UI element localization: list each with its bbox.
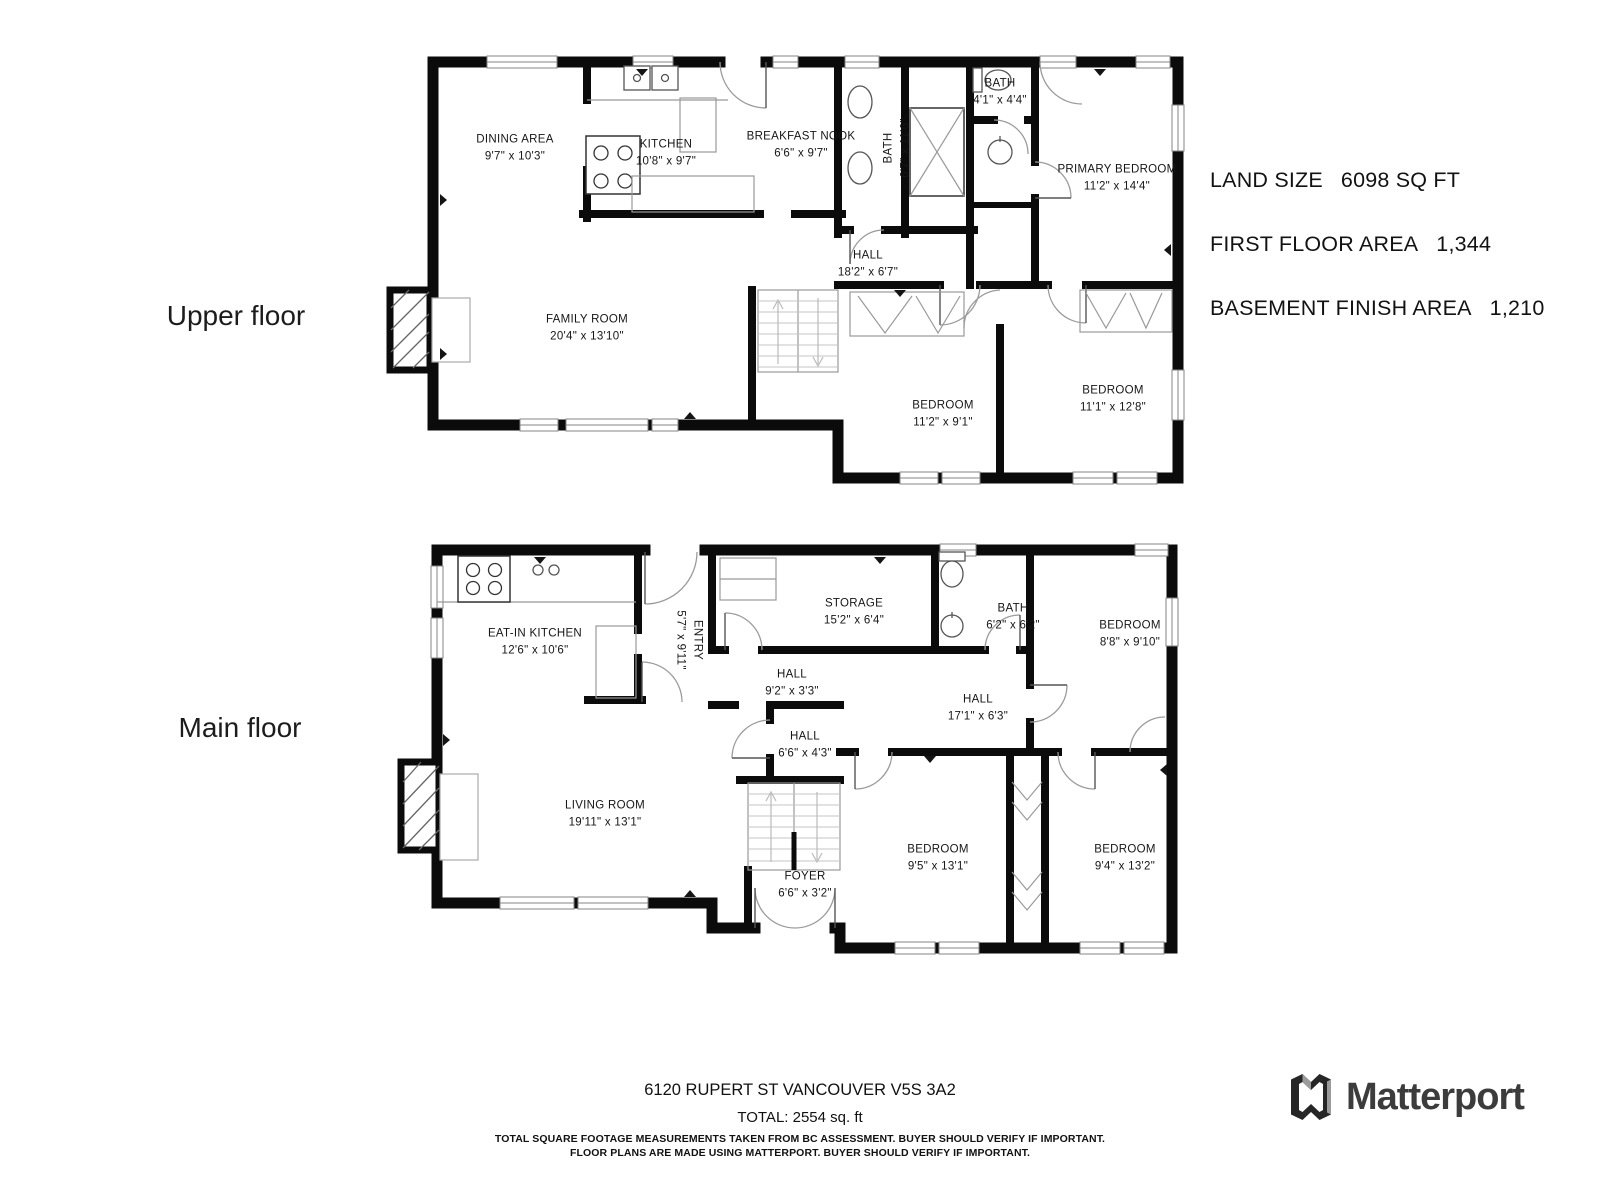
room-name: EAT-IN KITCHEN: [488, 625, 582, 642]
stat-label: BASEMENT FINISH AREA: [1210, 296, 1472, 321]
room-dims: 9'2" x 3'3": [765, 683, 819, 700]
room-dims: 6'6" x 3'2": [778, 885, 832, 902]
room-name: FOYER: [778, 868, 832, 885]
room-label-main-entry: ENTRY5'7" x 9'11": [672, 610, 705, 669]
room-dims: 4'1" x 4'4": [973, 92, 1027, 109]
stat-basement-finish-area: BASEMENT FINISH AREA 1,210: [1210, 296, 1544, 321]
door-icon: [642, 552, 1165, 928]
room-label-upper-nook: BREAKFAST NOOK6'6" x 9'7": [747, 128, 856, 161]
disclaimer-line-2: FLOOR PLANS ARE MADE USING MATTERPORT. B…: [0, 1147, 1600, 1159]
room-dims: 18'2" x 6'7": [838, 264, 898, 281]
room-dims: 8'8" x 9'10": [1099, 634, 1161, 651]
room-name: PRIMARY BEDROOM: [1057, 161, 1176, 178]
room-name: BEDROOM: [907, 841, 969, 858]
matterport-logo: Matterport: [1286, 1072, 1524, 1122]
room-dims: 17'1" x 6'3": [948, 708, 1008, 725]
stat-value: 1,344: [1436, 232, 1491, 257]
room-label-upper-family: FAMILY ROOM20'4" x 13'10": [546, 311, 628, 344]
room-label-main-bedroom_right: BEDROOM9'4" x 13'2": [1094, 841, 1156, 874]
matterport-logo-icon: [1286, 1072, 1336, 1122]
room-dims: 19'11" x 13'1": [565, 814, 645, 831]
room-name: HALL: [948, 691, 1008, 708]
room-label-upper-bath_small: BATH4'1" x 4'4": [973, 75, 1027, 108]
room-label-main-kitchen: EAT-IN KITCHEN12'6" x 10'6": [488, 625, 582, 658]
room-label-upper-bedroom_b: BEDROOM11'1" x 12'8": [1080, 382, 1146, 415]
room-name: BEDROOM: [1099, 617, 1161, 634]
stat-value: 1,210: [1490, 296, 1545, 321]
room-label-upper-hall: HALL18'2" x 6'7": [838, 247, 898, 280]
room-label-main-living: LIVING ROOM19'11" x 13'1": [565, 797, 645, 830]
stairs-icon: [758, 290, 838, 372]
room-label-upper-bath_main: BATH6'7" x 11'6": [880, 118, 913, 177]
room-dims: 12'6" x 10'6": [488, 642, 582, 659]
room-name: BREAKFAST NOOK: [747, 128, 856, 145]
room-name: STORAGE: [824, 595, 884, 612]
stat-land-size: LAND SIZE 6098 SQ FT: [1210, 168, 1544, 193]
main-floor-title: Main floor: [179, 712, 302, 744]
room-name: BATH: [986, 600, 1040, 617]
room-name: HALL: [765, 666, 819, 683]
room-dims: 11'1" x 12'8": [1080, 399, 1146, 416]
room-name: DINING AREA: [476, 131, 553, 148]
room-label-upper-primary: PRIMARY BEDROOM11'2" x 14'4": [1057, 161, 1176, 194]
room-label-main-storage: STORAGE15'2" x 6'4": [824, 595, 884, 628]
room-label-main-bedroom_top: BEDROOM8'8" x 9'10": [1099, 617, 1161, 650]
stat-value: 6098 SQ FT: [1341, 168, 1460, 193]
room-label-upper-kitchen: KITCHEN10'8" x 9'7": [636, 136, 696, 169]
room-name: LIVING ROOM: [565, 797, 645, 814]
room-name: HALL: [838, 247, 898, 264]
room-dims: 20'4" x 13'10": [546, 328, 628, 345]
area-stats: LAND SIZE 6098 SQ FT FIRST FLOOR AREA 1,…: [1210, 168, 1544, 360]
dimension-arrow-icon: [443, 557, 1167, 897]
matterport-logo-text: Matterport: [1346, 1076, 1524, 1119]
room-dims: 6'2" x 6'2": [986, 617, 1040, 634]
room-name: BEDROOM: [1080, 382, 1146, 399]
upper-floor-title: Upper floor: [167, 300, 306, 332]
room-label-main-foyer: FOYER6'6" x 3'2": [778, 868, 832, 901]
room-name: BATH: [973, 75, 1027, 92]
room-label-main-hall_a: HALL9'2" x 3'3": [765, 666, 819, 699]
room-name: BEDROOM: [912, 397, 974, 414]
room-dims: 10'8" x 9'7": [636, 153, 696, 170]
room-label-main-bath: BATH6'2" x 6'2": [986, 600, 1040, 633]
closet-icon: [850, 290, 1172, 336]
room-dims: 9'5" x 13'1": [907, 858, 969, 875]
room-dims: 15'2" x 6'4": [824, 612, 884, 629]
room-dims: 6'7" x 11'6": [897, 118, 914, 177]
disclaimer-line-1: TOTAL SQUARE FOOTAGE MEASUREMENTS TAKEN …: [0, 1133, 1600, 1145]
room-label-upper-bedroom_a: BEDROOM11'2" x 9'1": [912, 397, 974, 430]
room-dims: 5'7" x 9'11": [672, 610, 689, 669]
room-dims: 11'2" x 9'1": [912, 414, 974, 431]
stat-label: FIRST FLOOR AREA: [1210, 232, 1418, 257]
room-name: HALL: [778, 728, 832, 745]
stat-first-floor-area: FIRST FLOOR AREA 1,344: [1210, 232, 1544, 257]
room-name: BATH: [880, 118, 897, 177]
room-name: KITCHEN: [636, 136, 696, 153]
room-label-main-bedroom_left: BEDROOM9'5" x 13'1": [907, 841, 969, 874]
room-name: FAMILY ROOM: [546, 311, 628, 328]
room-dims: 9'4" x 13'2": [1094, 858, 1156, 875]
room-dims: 6'6" x 4'3": [778, 745, 832, 762]
closet-icon: [1012, 782, 1042, 910]
room-dims: 6'6" x 9'7": [747, 145, 856, 162]
room-name: ENTRY: [689, 610, 706, 669]
room-dims: 9'7" x 10'3": [476, 148, 553, 165]
room-label-main-hall_b: HALL17'1" x 6'3": [948, 691, 1008, 724]
room-name: BEDROOM: [1094, 841, 1156, 858]
room-dims: 11'2" x 14'4": [1057, 178, 1176, 195]
room-label-main-hall_c: HALL6'6" x 4'3": [778, 728, 832, 761]
stairs-icon: [748, 783, 840, 870]
room-label-upper-dining: DINING AREA9'7" x 10'3": [476, 131, 553, 164]
upper-floor-plan: [380, 50, 1190, 490]
stat-label: LAND SIZE: [1210, 168, 1323, 193]
